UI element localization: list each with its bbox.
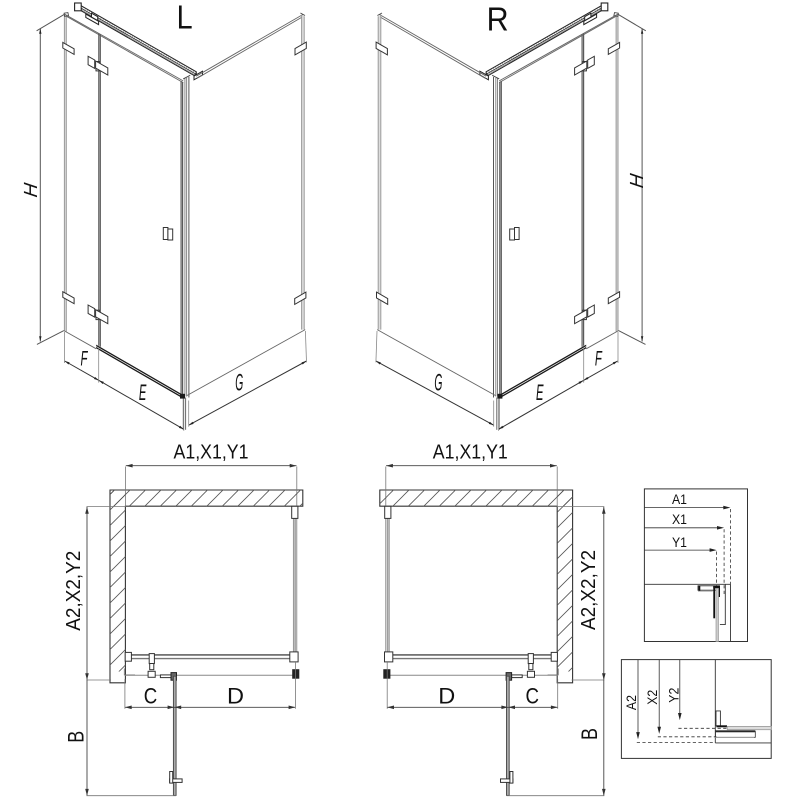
svg-text:G: G — [235, 370, 243, 397]
svg-text:B: B — [577, 728, 602, 740]
svg-text:A2,X2,Y2: A2,X2,Y2 — [577, 550, 600, 630]
svg-text:A1: A1 — [672, 492, 687, 507]
svg-text:F: F — [81, 346, 89, 370]
svg-text:A1,X1,Y1: A1,X1,Y1 — [174, 440, 249, 463]
svg-text:Y2: Y2 — [667, 688, 682, 703]
svg-text:L: L — [177, 0, 193, 36]
svg-text:E: E — [139, 380, 147, 405]
svg-text:X1: X1 — [672, 512, 687, 527]
svg-text:D: D — [438, 683, 455, 708]
svg-text:E: E — [536, 380, 544, 405]
svg-text:F: F — [595, 346, 603, 370]
svg-text:G: G — [434, 370, 442, 397]
svg-text:C: C — [144, 683, 158, 708]
svg-text:C: C — [526, 683, 540, 708]
svg-text:B: B — [64, 731, 89, 743]
svg-text:A1,X1,Y1: A1,X1,Y1 — [433, 440, 508, 463]
svg-text:A2,X2,Y2: A2,X2,Y2 — [62, 551, 85, 631]
svg-text:Y1: Y1 — [672, 535, 687, 550]
svg-text:R: R — [487, 1, 509, 38]
svg-text:H: H — [21, 182, 42, 199]
svg-text:X2: X2 — [645, 690, 660, 705]
svg-text:H: H — [627, 172, 648, 189]
svg-text:D: D — [227, 683, 244, 708]
svg-text:A2: A2 — [624, 695, 639, 710]
